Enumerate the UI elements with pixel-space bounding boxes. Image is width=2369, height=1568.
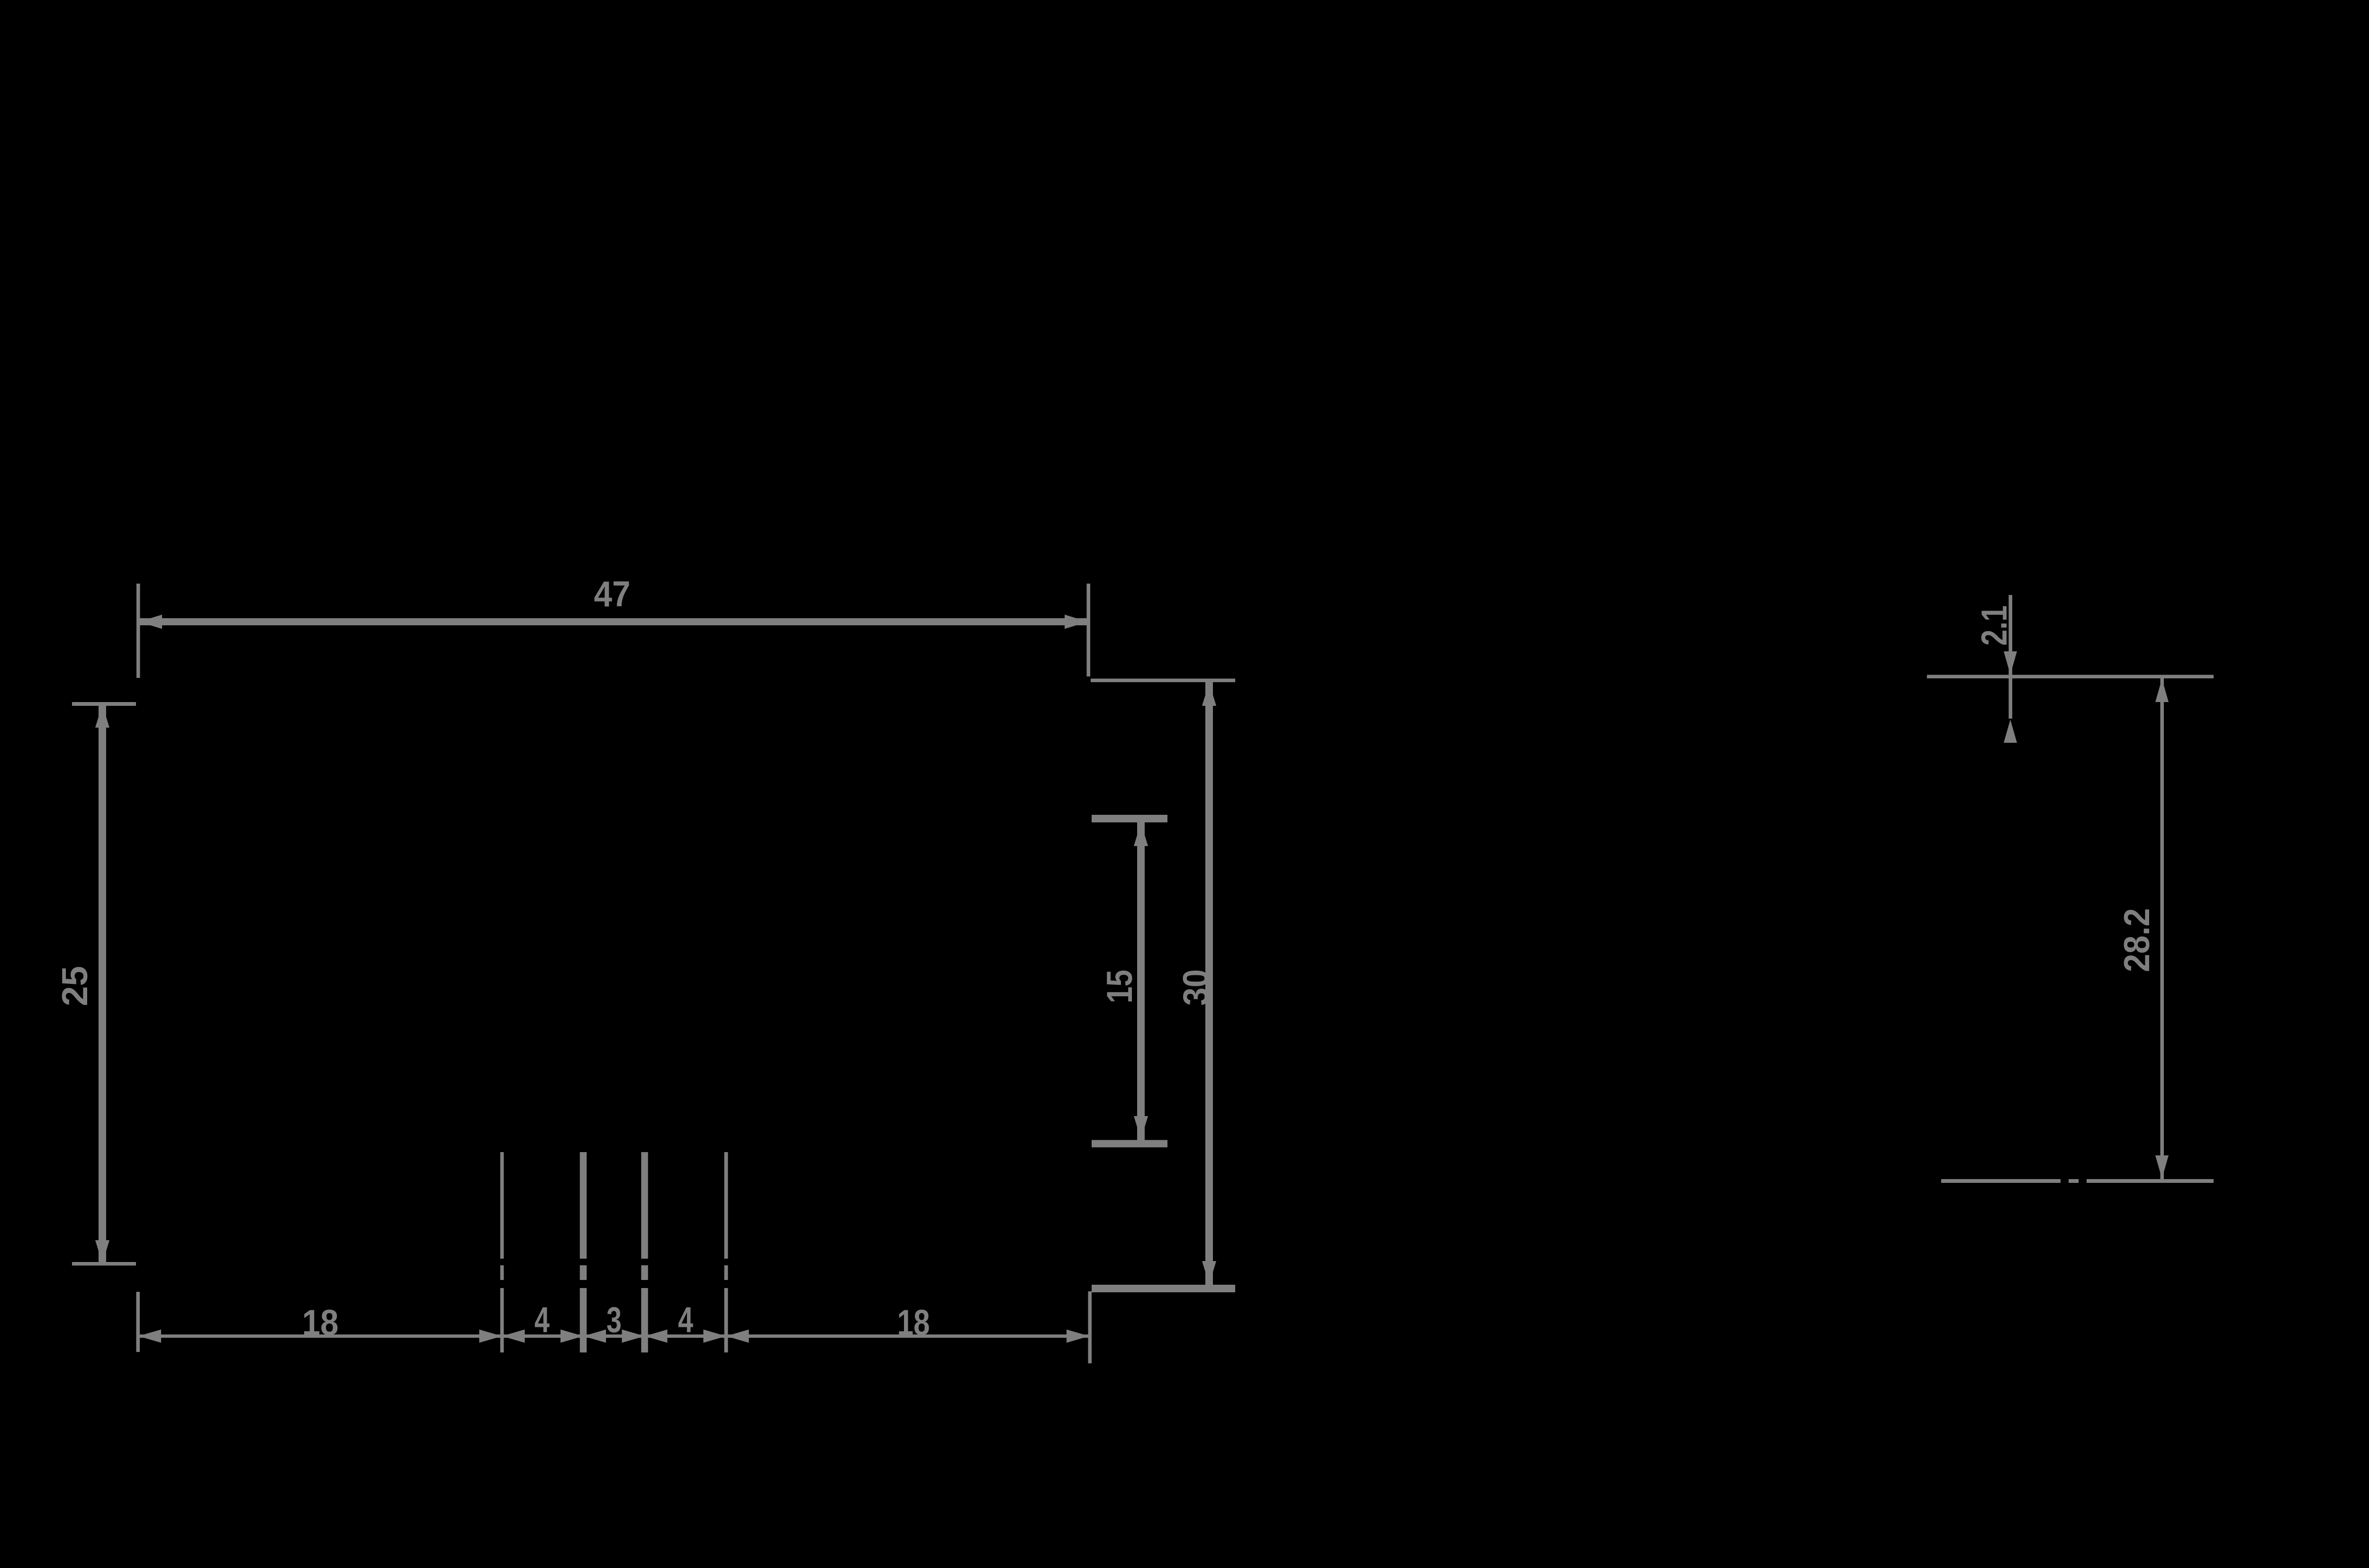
svg-text:18: 18 [897, 1303, 930, 1343]
svg-text:30: 30 [1176, 969, 1216, 1006]
svg-text:4: 4 [534, 1300, 550, 1340]
svg-text:18: 18 [302, 1303, 339, 1343]
svg-text:15: 15 [1100, 970, 1140, 1003]
svg-text:3: 3 [606, 1300, 622, 1340]
svg-text:28.2: 28.2 [2117, 908, 2157, 972]
svg-text:25: 25 [55, 966, 95, 1006]
svg-text:47: 47 [594, 574, 631, 614]
svg-text:4: 4 [678, 1300, 693, 1340]
svg-text:2.1: 2.1 [1974, 605, 2015, 646]
